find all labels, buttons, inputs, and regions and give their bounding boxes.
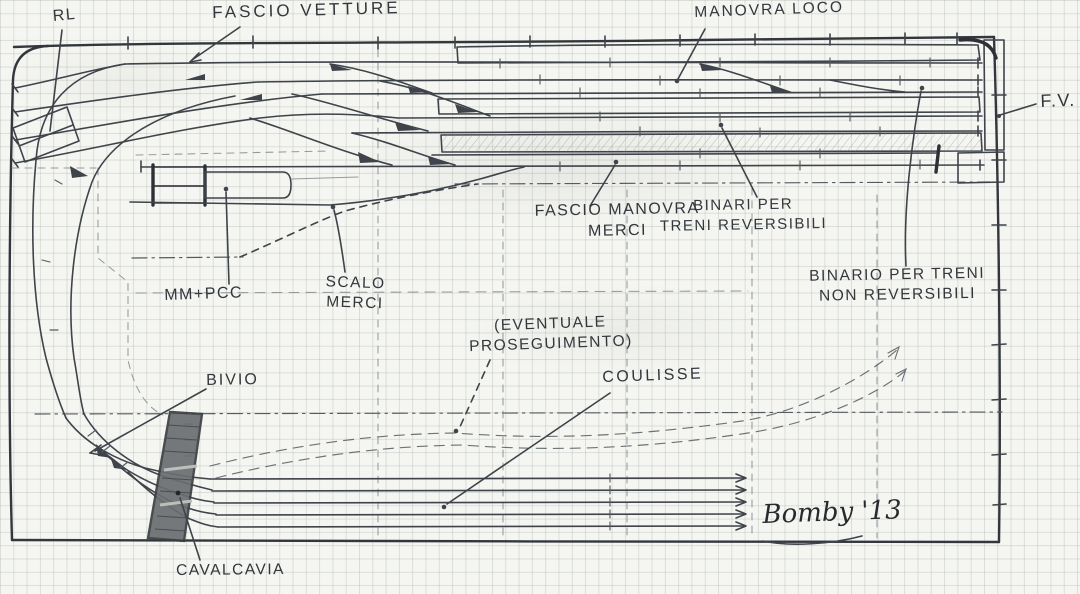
coulisse-tracks xyxy=(185,424,746,530)
mm-pcc-building xyxy=(153,165,205,205)
mainline-curve xyxy=(33,64,235,418)
station-tracks xyxy=(125,62,984,172)
label-coulisse: COULISSE xyxy=(602,364,704,388)
cavalcavia-overpass xyxy=(148,412,202,541)
label-rl: RL xyxy=(52,5,77,28)
label-bivio: BIVIO xyxy=(206,370,259,392)
goods-platform-strip xyxy=(205,172,291,198)
label-binario-non-reversibili: BINARIO PER TRENI NON REVERSIBILI xyxy=(797,264,998,308)
label-binari-reversibili: BINARI PER TRENI REVERSIBILI xyxy=(652,194,835,236)
label-scalo-merci: SCALO MERCI xyxy=(316,272,395,315)
author-signature: Bomby '13 xyxy=(762,495,902,530)
platform-2 xyxy=(438,97,980,114)
label-mm-pcc: MM+PCC xyxy=(164,283,243,307)
label-eventuale-proseguimento: (EVENTUALE PROSEGUIMENTO) xyxy=(444,311,657,359)
graph-paper-sheet: RL FASCIO VETTURE MANOVRA LOCO F.V. FASC… xyxy=(0,0,1080,594)
platform-1 xyxy=(457,44,980,63)
label-fv: F.V. xyxy=(1040,89,1076,114)
label-cavalcavia: CAVALCAVIA xyxy=(176,560,285,581)
station-platforms xyxy=(438,44,982,152)
